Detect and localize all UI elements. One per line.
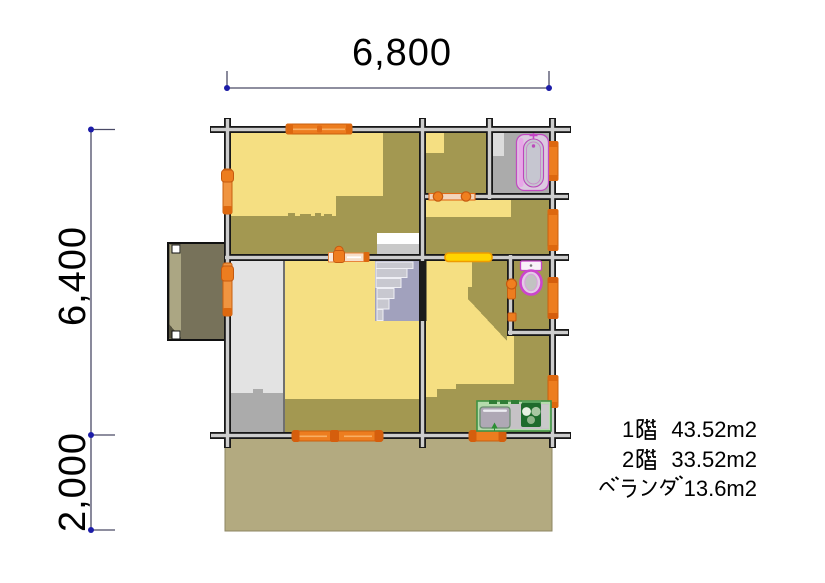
svg-text:2: 2	[622, 447, 634, 472]
svg-text:1: 1	[622, 417, 634, 442]
svg-text:13.6m2: 13.6m2	[684, 476, 757, 501]
svg-text:43.52m2: 43.52m2	[671, 417, 757, 442]
svg-text:2,000: 2,000	[52, 432, 94, 532]
svg-text:6,800: 6,800	[352, 32, 452, 74]
svg-text:6,400: 6,400	[52, 226, 94, 326]
svg-text:33.52m2: 33.52m2	[671, 447, 757, 472]
